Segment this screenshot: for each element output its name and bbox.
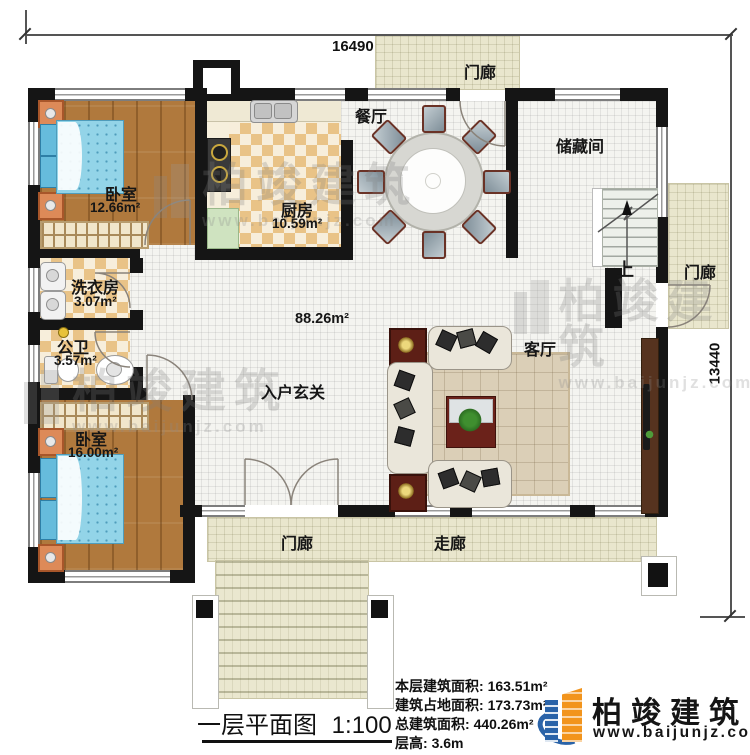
area-laundry: 3.07m²	[74, 294, 117, 309]
label-porch-bottom: 门廊	[281, 530, 313, 554]
stat-value: 440.26m²	[474, 716, 534, 732]
stat-floor-area: 本层建筑面积: 163.51m²	[395, 676, 548, 696]
dimension-ext-bottom	[700, 616, 745, 618]
area-hall: 88.26m²	[295, 311, 349, 327]
logo-building-blue	[545, 700, 558, 742]
label-corridor: 走廊	[434, 530, 466, 554]
title-underline	[202, 740, 392, 743]
area-kitchen: 10.59m²	[272, 216, 322, 231]
plan-title: 一层平面图 1:100	[197, 705, 392, 740]
plan-title-name: 一层平面图	[197, 712, 317, 739]
label-living: 客厅	[524, 336, 556, 360]
dim-width-label: 16490	[332, 38, 374, 55]
plan-title-scale: 1:100	[332, 712, 392, 739]
area-bedroom1: 12.66m²	[90, 200, 140, 215]
stat-label: 本层建筑面积:	[395, 678, 484, 694]
label-stairs-up: 上	[616, 256, 634, 282]
floor-plan: 16490 13440 柏竣建筑 www.baijunjz.com 柏竣建筑 w…	[0, 0, 750, 755]
stat-label: 层高:	[395, 735, 428, 751]
stat-floor-height: 层高: 3.6m	[395, 733, 463, 753]
area-bathroom: 3.57m²	[54, 353, 97, 368]
brand-logo-icon	[537, 686, 589, 748]
dimension-line-top	[25, 34, 733, 36]
area-bedroom2: 16.00m²	[68, 445, 118, 460]
stat-total-area: 总建筑面积: 440.26m²	[395, 714, 534, 734]
dimension-line-right	[730, 34, 732, 617]
label-storage: 储藏间	[556, 133, 604, 157]
label-dining: 餐厅	[355, 103, 387, 127]
dimension-ext-left	[25, 10, 27, 44]
label-porch-right: 门廊	[684, 259, 716, 283]
logo-building-orange	[562, 688, 582, 742]
label-foyer: 入户玄关	[261, 379, 325, 403]
brand-website: www.baijunjz.com	[593, 724, 750, 742]
stat-value: 3.6m	[432, 735, 464, 751]
stat-label: 建筑占地面积:	[395, 697, 484, 713]
stat-footprint-area: 建筑占地面积: 173.73m²	[395, 695, 548, 715]
label-porch-top: 门廊	[464, 59, 496, 83]
stat-label: 总建筑面积:	[395, 716, 470, 732]
dim-height-label: 13440	[707, 329, 724, 399]
